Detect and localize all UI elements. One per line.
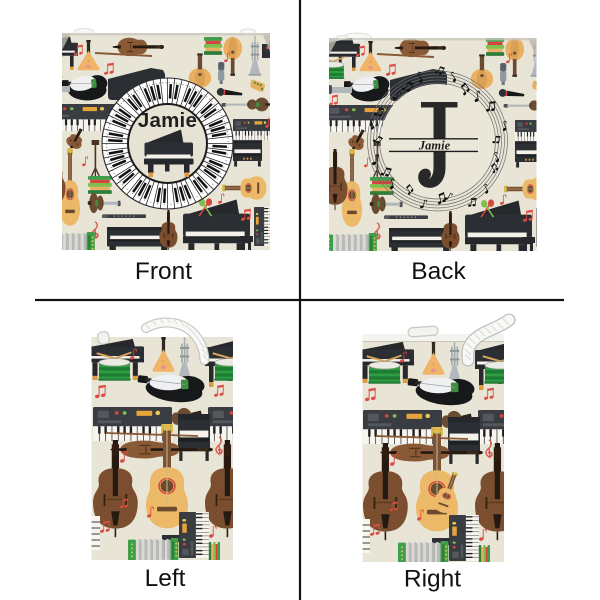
svg-text:Jamie: Jamie bbox=[138, 109, 197, 132]
svg-text:Right: Right bbox=[404, 566, 461, 593]
svg-text:Jamie: Jamie bbox=[418, 139, 451, 153]
svg-text:Front: Front bbox=[135, 258, 192, 285]
svg-text:Back: Back bbox=[411, 258, 466, 285]
svg-text:Left: Left bbox=[145, 565, 186, 592]
